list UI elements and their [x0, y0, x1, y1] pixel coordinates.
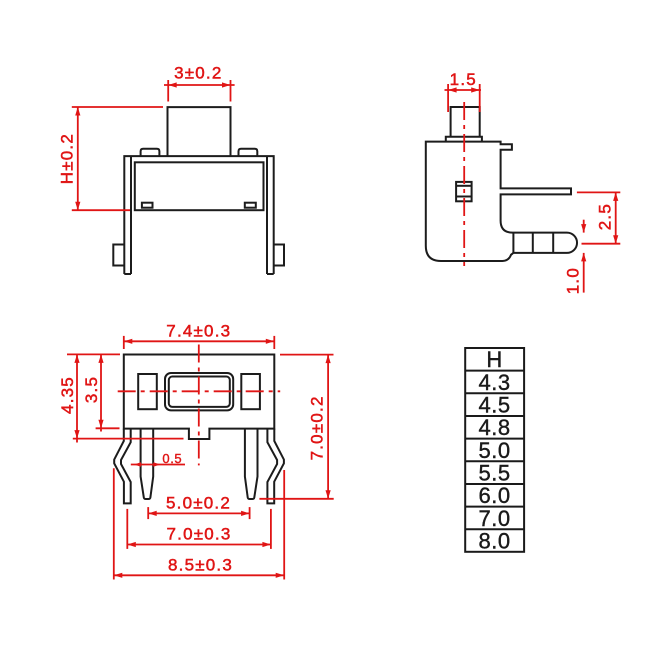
- svg-text:4.35: 4.35: [58, 376, 77, 414]
- svg-text:1.0: 1.0: [564, 267, 583, 294]
- svg-text:7.0: 7.0: [479, 506, 511, 531]
- svg-text:4.5: 4.5: [479, 393, 511, 418]
- svg-text:5.5: 5.5: [479, 461, 511, 486]
- svg-text:4.3: 4.3: [479, 370, 511, 395]
- svg-text:8.0: 8.0: [479, 529, 511, 554]
- svg-text:2.5: 2.5: [596, 203, 615, 230]
- svg-text:7.4±0.3: 7.4±0.3: [166, 321, 231, 340]
- svg-text:5.0±0.2: 5.0±0.2: [166, 493, 231, 512]
- svg-text:3±0.2: 3±0.2: [174, 64, 222, 83]
- svg-text:7.0±0.2: 7.0±0.2: [308, 395, 327, 460]
- svg-text:8.5±0.3: 8.5±0.3: [168, 555, 233, 574]
- svg-text:3.5: 3.5: [82, 376, 101, 403]
- svg-text:5.0: 5.0: [479, 438, 511, 463]
- svg-text:H±0.2: H±0.2: [57, 133, 76, 184]
- svg-text:1.5: 1.5: [450, 70, 477, 89]
- svg-text:7.0±0.3: 7.0±0.3: [167, 524, 232, 543]
- svg-text:6.0: 6.0: [479, 483, 511, 508]
- svg-text:H: H: [486, 347, 502, 372]
- svg-text:4.8: 4.8: [479, 415, 511, 440]
- svg-text:0.5: 0.5: [162, 451, 182, 466]
